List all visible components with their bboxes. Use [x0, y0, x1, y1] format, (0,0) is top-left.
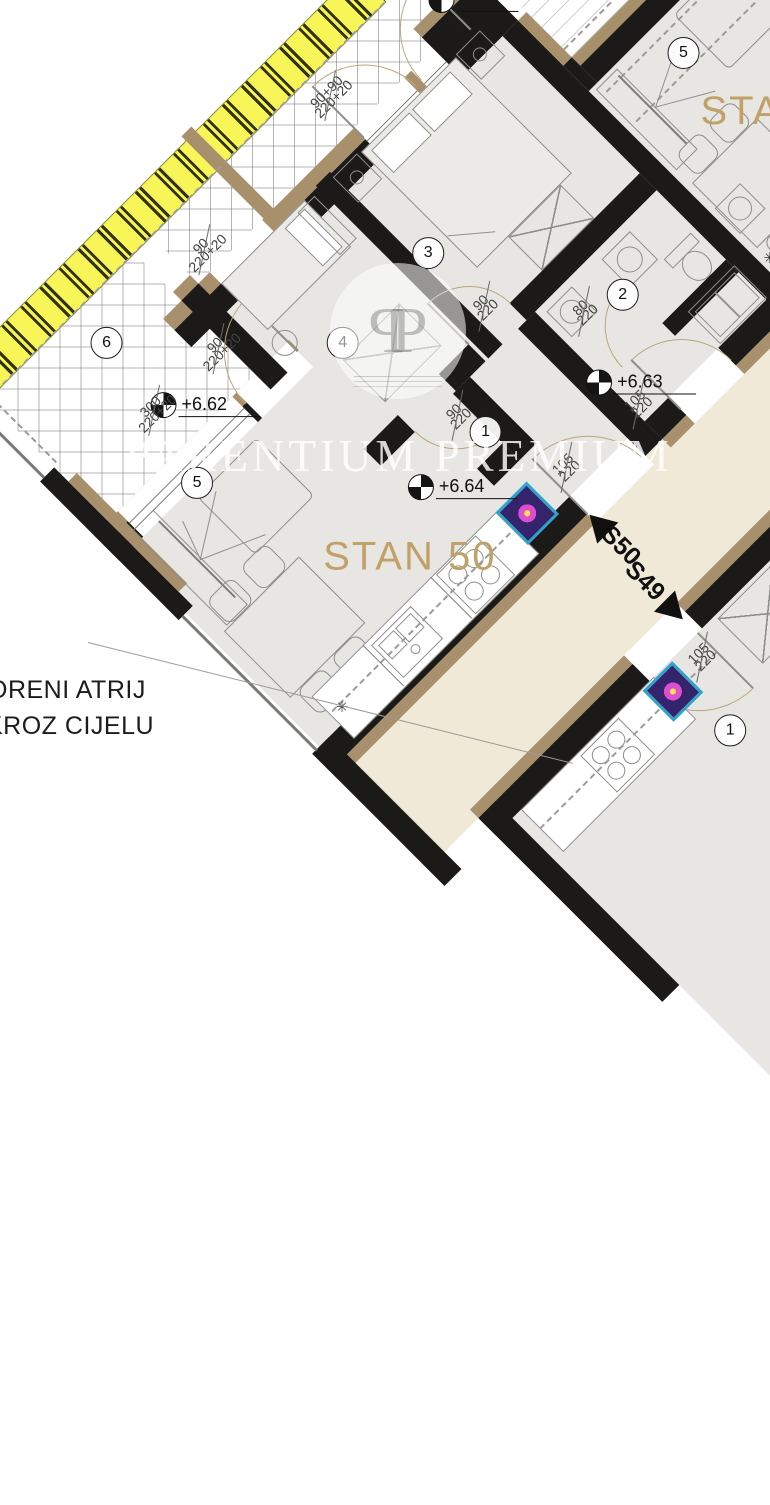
room-number-terrace: 6	[91, 327, 123, 359]
apartment-label-right: STAN	[700, 89, 770, 134]
annotation-line-1: ORENI ATRIJ	[0, 676, 146, 705]
elevation-value: +6.62	[179, 394, 261, 416]
watermark-ornament-lines	[354, 376, 442, 377]
elevation-benchmark-icon	[429, 0, 455, 13]
kitchen-star-icon: ✳	[763, 249, 770, 267]
watermark-badge: PP	[330, 263, 466, 399]
room-number-bathroom: 2	[607, 279, 639, 311]
annotation-line-2: KROZ CIJELU	[0, 712, 154, 741]
elevation-partial-top	[429, 0, 519, 13]
watermark-monogram: PP	[368, 298, 427, 364]
floor-plan-canvas: 6 5 3 4 2 1 5 1 +6.62 +6.64 +6.63 90+902…	[0, 0, 770, 1505]
apartment-label-stan50: STAN 50	[323, 535, 496, 580]
watermark-brand: PARENTIUM PREMIUM	[125, 430, 655, 482]
room-number-bedroom-a: 3	[412, 237, 444, 269]
elevation-benchmark-icon	[586, 369, 612, 395]
room-number-living-right: 5	[668, 37, 700, 69]
room-number-hall-s49: 1	[714, 714, 746, 746]
